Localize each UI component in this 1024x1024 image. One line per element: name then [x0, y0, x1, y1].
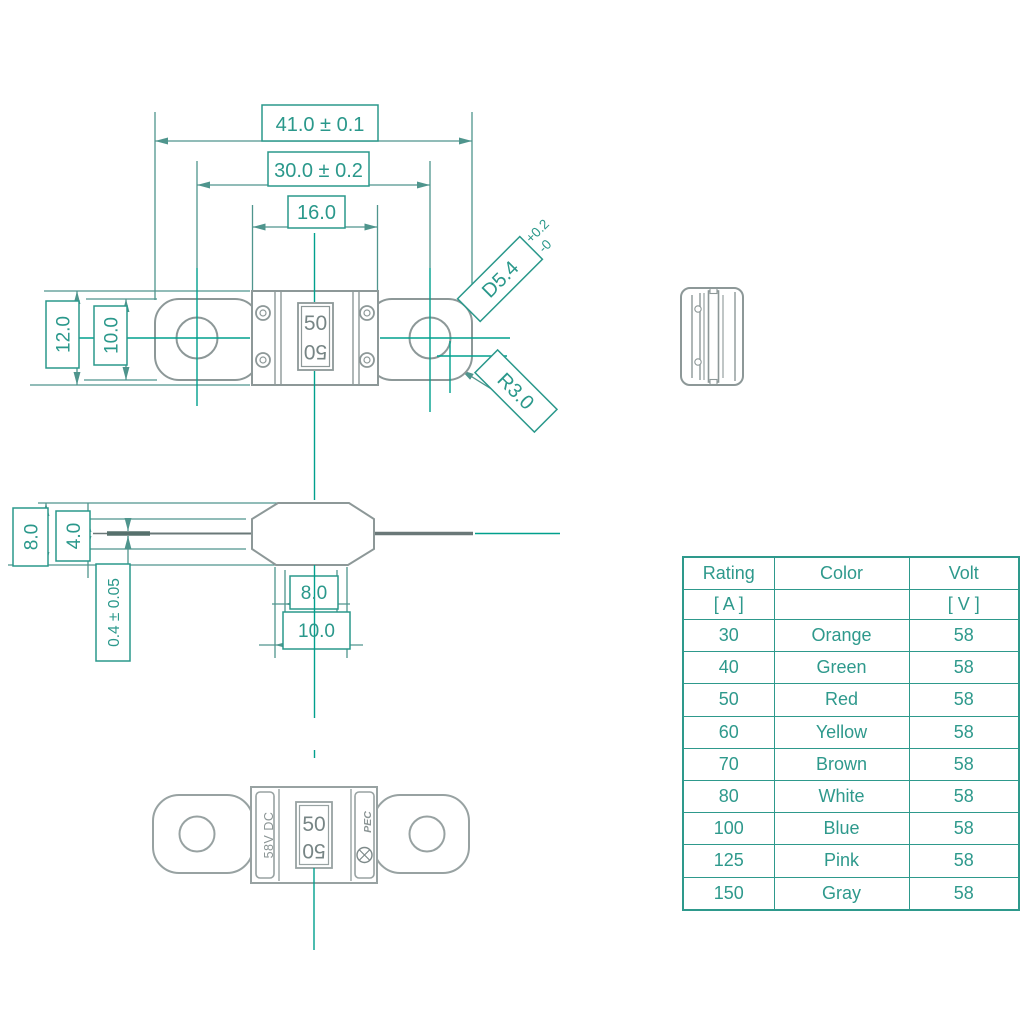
rating-cell: 50: [683, 684, 774, 716]
dim-base-inner-label: 8.0: [301, 583, 327, 604]
table-row: 30 Orange 58: [683, 620, 1019, 652]
unit-blank: [774, 590, 909, 620]
rating-cell: 70: [683, 748, 774, 780]
header-color: Color: [774, 557, 909, 590]
corner-radius-annotation: R3.0: [475, 350, 557, 432]
table-row: 80 White 58: [683, 780, 1019, 812]
fuse-end-view: [681, 288, 743, 385]
rating-cell: 125: [683, 845, 774, 877]
table-header-row: Rating Color Volt: [683, 557, 1019, 590]
table-row: 40 Green 58: [683, 652, 1019, 684]
table-row: 60 Yellow 58: [683, 716, 1019, 748]
rating-marking-top: 50: [304, 312, 327, 335]
left-mounting-hole: [180, 817, 215, 852]
fuse-side-view: [93, 503, 473, 565]
certification-mark-icon: [357, 848, 372, 863]
color-cell: Orange: [774, 620, 909, 652]
color-cell: Yellow: [774, 716, 909, 748]
rating-table: Rating Color Volt [ A ] [ V ] 30 Orange …: [682, 556, 1020, 911]
table-row: 50 Red 58: [683, 684, 1019, 716]
color-cell: Blue: [774, 813, 909, 845]
rating-cell: 100: [683, 813, 774, 845]
volt-cell: 58: [909, 716, 1019, 748]
table-row: 70 Brown 58: [683, 748, 1019, 780]
rating-cell: 80: [683, 780, 774, 812]
brand-logo: PEC: [362, 811, 374, 833]
dim-overall-length-label: 41.0 ± 0.1: [276, 114, 365, 136]
rating-cell: 150: [683, 877, 774, 910]
voltage-marking: 58V DC: [262, 812, 276, 859]
volt-cell: 58: [909, 652, 1019, 684]
hole-diameter-annotation: D5.4 +0.2 -0: [458, 216, 564, 322]
dim-side-height-label: 8.0: [22, 524, 43, 550]
volt-cell: 58: [909, 780, 1019, 812]
unit-amps: [ A ]: [683, 590, 774, 620]
header-volt: Volt: [909, 557, 1019, 590]
dim-base-outer-label: 10.0: [298, 621, 335, 642]
volt-cell: 58: [909, 620, 1019, 652]
volt-cell: 58: [909, 877, 1019, 910]
dim-overall-height-label: 12.0: [54, 316, 75, 353]
volt-cell: 58: [909, 748, 1019, 780]
dim-body-mid-label: 4.0: [64, 523, 85, 549]
color-cell: White: [774, 780, 909, 812]
table-row: 125 Pink 58: [683, 845, 1019, 877]
rating-cell: 60: [683, 716, 774, 748]
dim-terminal-height-label: 10.0: [102, 317, 123, 354]
color-cell: Brown: [774, 748, 909, 780]
rating-marking-bottom: 50: [302, 813, 325, 836]
rating-marking-bottom-mirrored: 50: [302, 839, 325, 862]
table-units-row: [ A ] [ V ]: [683, 590, 1019, 620]
fuse-datasheet-page: 41.0 ± 0.1 30.0 ± 0.2 16.0 12.0 10.0 8.0…: [0, 0, 1024, 1024]
color-cell: Pink: [774, 845, 909, 877]
table-row: 150 Gray 58: [683, 877, 1019, 910]
volt-cell: 58: [909, 845, 1019, 877]
color-cell: Red: [774, 684, 909, 716]
side-body: [252, 503, 374, 565]
volt-cell: 58: [909, 684, 1019, 716]
dim-hole-pitch-label: 30.0 ± 0.2: [274, 160, 363, 182]
unit-volts: [ V ]: [909, 590, 1019, 620]
dim-terminal-thickness-label: 0.4 ± 0.05: [106, 578, 123, 647]
rating-cell: 40: [683, 652, 774, 684]
volt-cell: 58: [909, 813, 1019, 845]
color-cell: Green: [774, 652, 909, 684]
color-cell: Gray: [774, 877, 909, 910]
table-row: 100 Blue 58: [683, 813, 1019, 845]
right-mounting-hole: [410, 817, 445, 852]
dim-body-width-label: 16.0: [297, 202, 336, 224]
header-rating: Rating: [683, 557, 774, 590]
rating-cell: 30: [683, 620, 774, 652]
rating-marking-top-mirrored: 50: [304, 340, 327, 363]
